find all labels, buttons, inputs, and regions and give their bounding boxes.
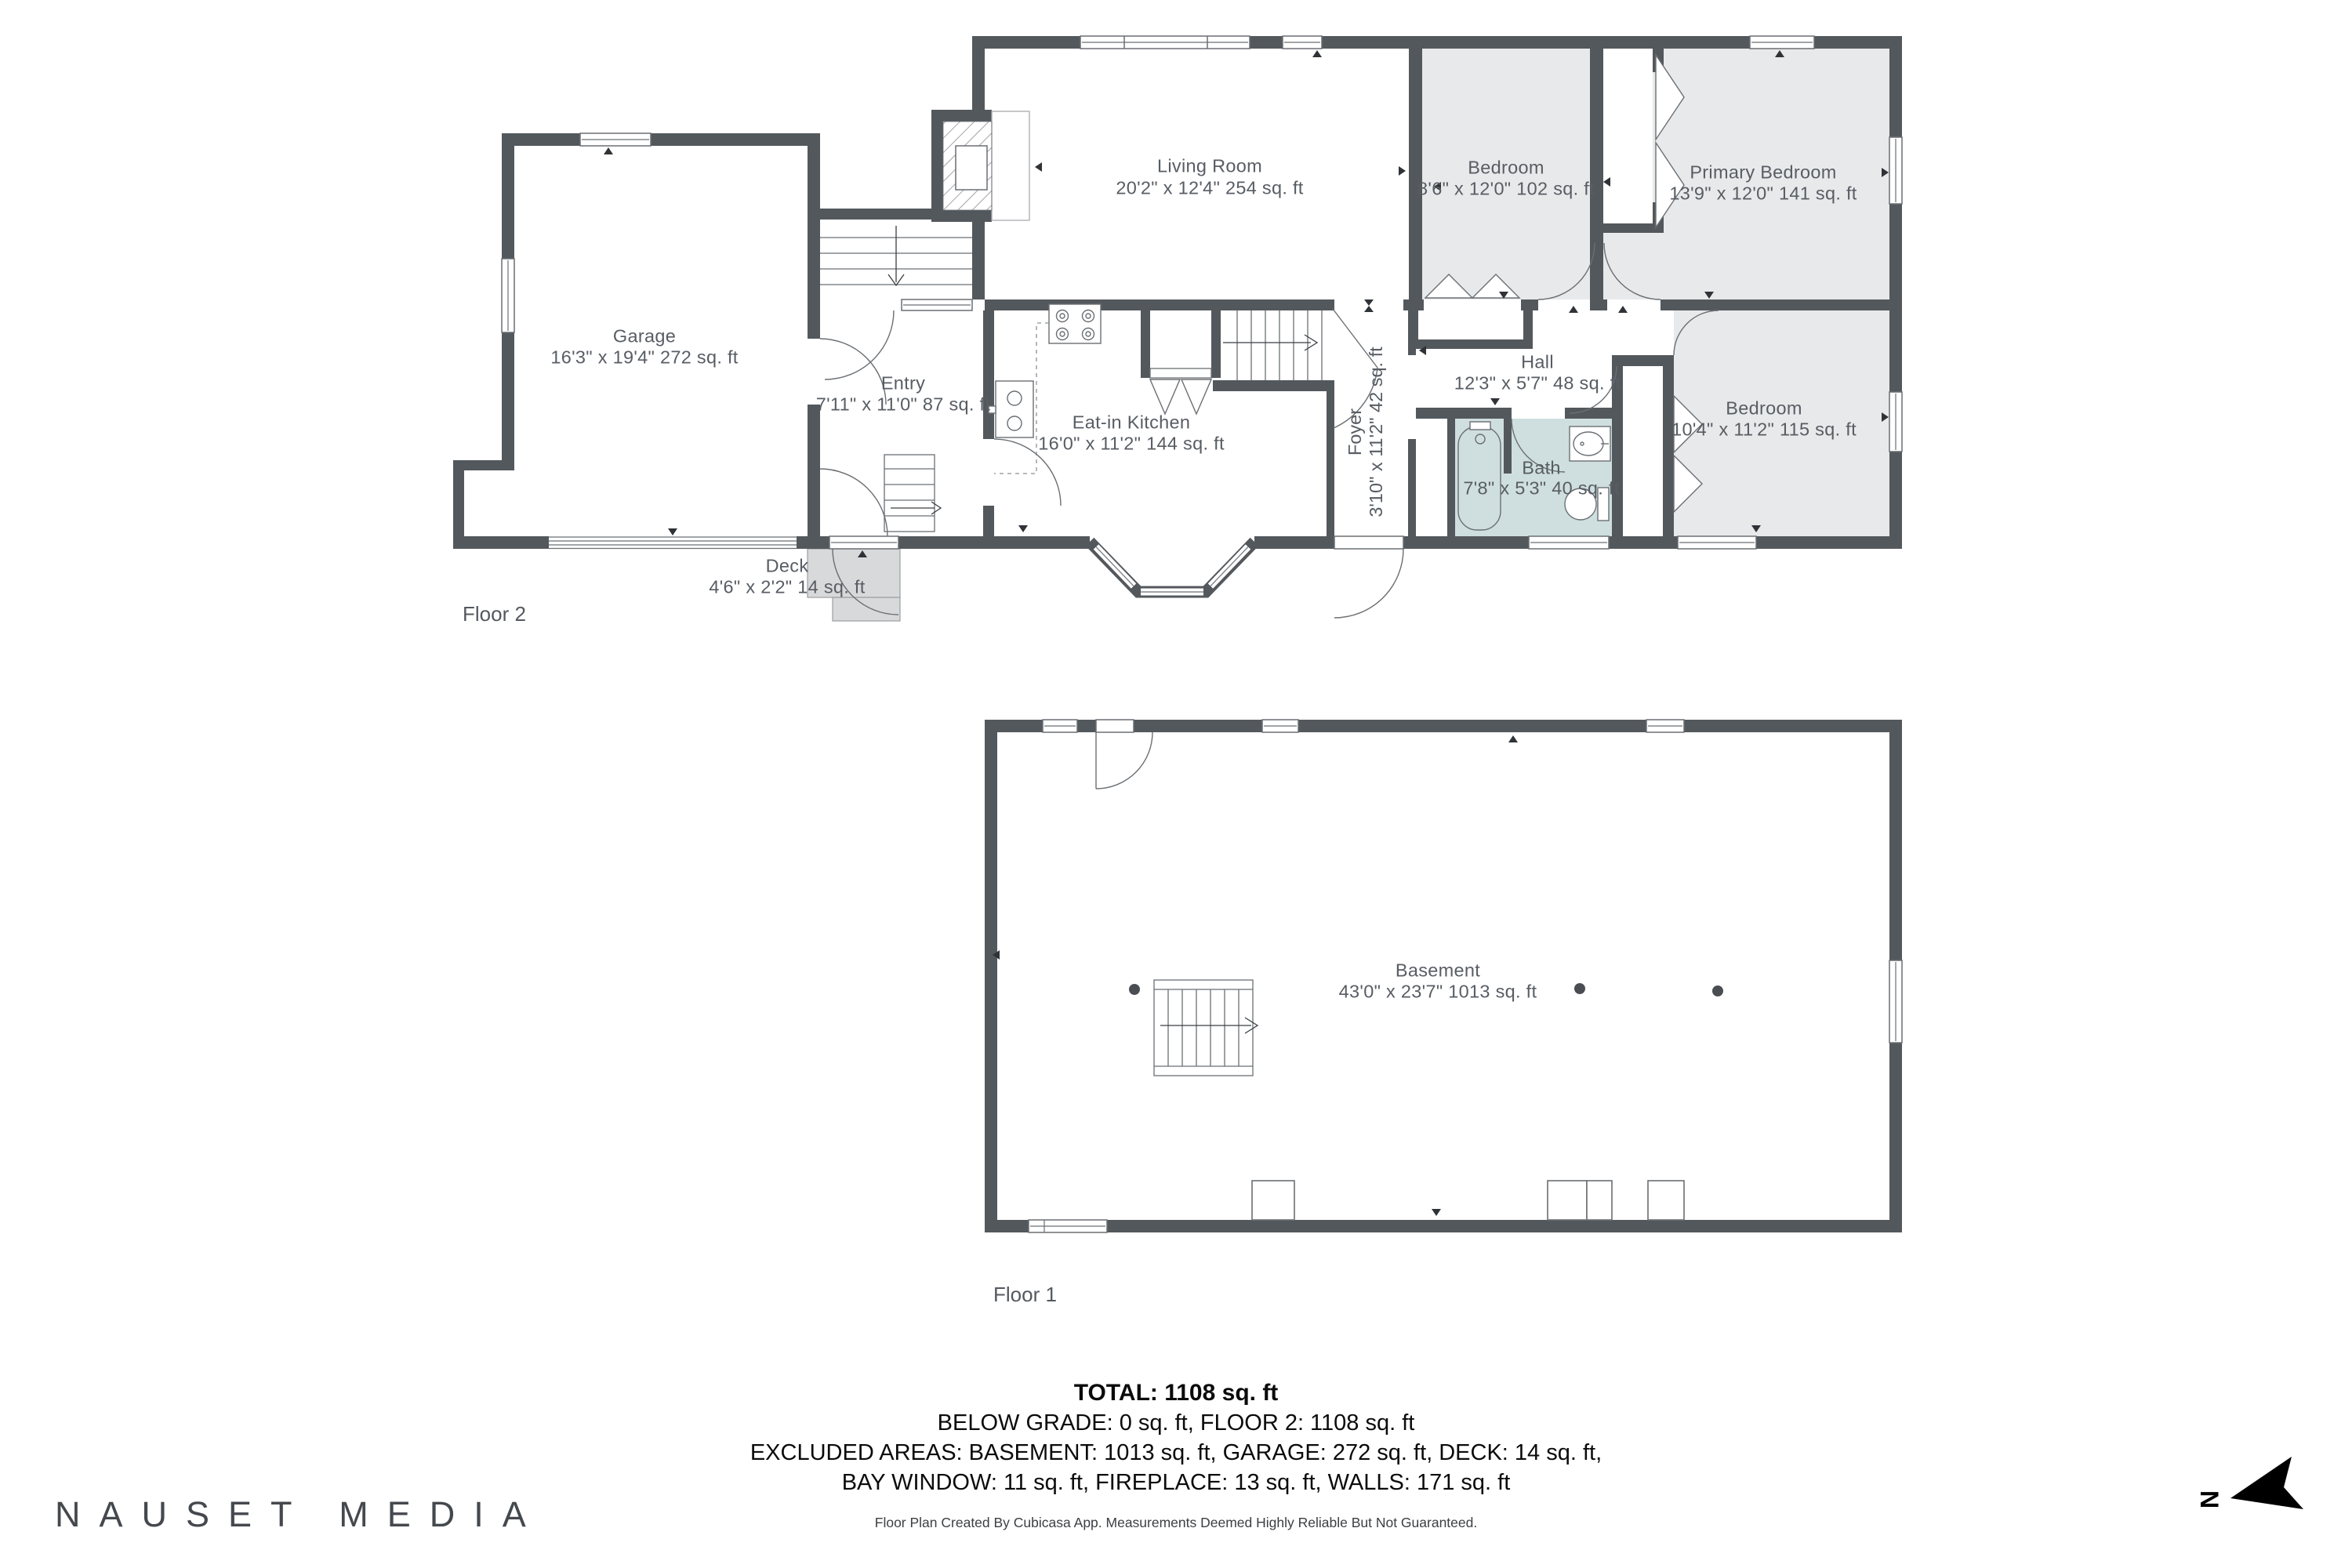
bay-window-icon	[1090, 542, 1254, 592]
kitchen-sink-icon	[989, 381, 1033, 437]
summary-excluded-2: BAY WINDOW: 11 sq. ft, FIREPLACE: 13 sq.…	[0, 1468, 2352, 1497]
room-label-primary-name: Primary Bedroom	[1690, 162, 1836, 183]
room-label-deck-name: Deck	[766, 556, 809, 577]
floor1-door-swing	[1096, 732, 1152, 789]
room-label-entry-name: Entry	[881, 373, 925, 394]
room-label-basement-name: Basement	[1396, 960, 1480, 982]
basement-features	[1252, 1181, 1684, 1220]
floorplan-drawing	[0, 0, 2352, 1568]
stairs-up-icon	[1223, 310, 1322, 380]
room-label-bedroom2-dims: 10'4" x 11'2" 115 sq. ft	[1671, 419, 1857, 441]
room-label-basement-dims: 43'0" x 23'7" 1013 sq. ft	[1339, 982, 1537, 1003]
room-label-living-name: Living Room	[1157, 156, 1262, 177]
floorplan-page: Garage 16'3" x 19'4" 272 sq. ft Living R…	[0, 0, 2352, 1568]
room-label-entry-dims: 7'11" x 11'0" 87 sq. ft	[816, 394, 990, 416]
room-label-bedroom-dims: 8'6" x 12'0" 102 sq. ft	[1417, 179, 1595, 200]
room-label-kitchen-dims: 16'0" x 11'2" 144 sq. ft	[1038, 434, 1225, 455]
room-label-kitchen-name: Eat-in Kitchen	[1073, 412, 1191, 434]
bath-sink-icon	[1570, 426, 1610, 461]
entry-steps-icon	[884, 455, 941, 532]
room-label-bedroom-name: Bedroom	[1468, 158, 1544, 179]
garage-door-icon	[549, 536, 797, 549]
stove-icon	[1049, 304, 1101, 343]
room-label-garage-dims: 16'3" x 19'4" 272 sq. ft	[550, 347, 738, 368]
room-label-hall-name: Hall	[1521, 352, 1554, 373]
summary-total: TOTAL: 1108 sq. ft	[0, 1378, 2352, 1408]
floor1-label: Floor 1	[993, 1283, 1057, 1307]
floor2-label: Floor 2	[463, 602, 526, 626]
room-label-foyer-dims: 3'10" x 11'2" 42 sq. ft	[1366, 347, 1387, 517]
room-label-deck-dims: 4'6" x 2'2" 14 sq. ft	[709, 577, 865, 598]
room-label-garage-name: Garage	[613, 326, 676, 347]
room-label-foyer: Foyer 3'10" x 11'2" 42 sq. ft	[1345, 347, 1387, 517]
room-label-bedroom2-name: Bedroom	[1726, 398, 1802, 419]
summary-excluded-1: EXCLUDED AREAS: BASEMENT: 1013 sq. ft, G…	[0, 1438, 2352, 1468]
room-label-bath-name: Bath	[1522, 458, 1561, 479]
fireplace-icon	[943, 111, 1029, 220]
basement-stairs-icon	[820, 226, 972, 285]
kitchen-pantry	[1150, 368, 1211, 378]
room-label-foyer-name: Foyer	[1345, 347, 1366, 517]
floor1-stairs-icon	[1154, 980, 1258, 1076]
room-label-living-dims: 20'2" x 12'4" 254 sq. ft	[1116, 178, 1303, 199]
summary-below-grade: BELOW GRADE: 0 sq. ft, FLOOR 2: 1108 sq.…	[0, 1408, 2352, 1438]
room-label-hall-dims: 12'3" x 5'7" 48 sq. ft	[1454, 373, 1621, 394]
room-label-primary-dims: 13'9" x 12'0" 141 sq. ft	[1669, 183, 1857, 205]
room-label-bath-dims: 7'8" x 5'3" 40 sq. ft	[1463, 478, 1619, 499]
nauset-media-logo: NAUSET MEDIA	[55, 1494, 545, 1535]
north-label: N	[2194, 1490, 2223, 1508]
